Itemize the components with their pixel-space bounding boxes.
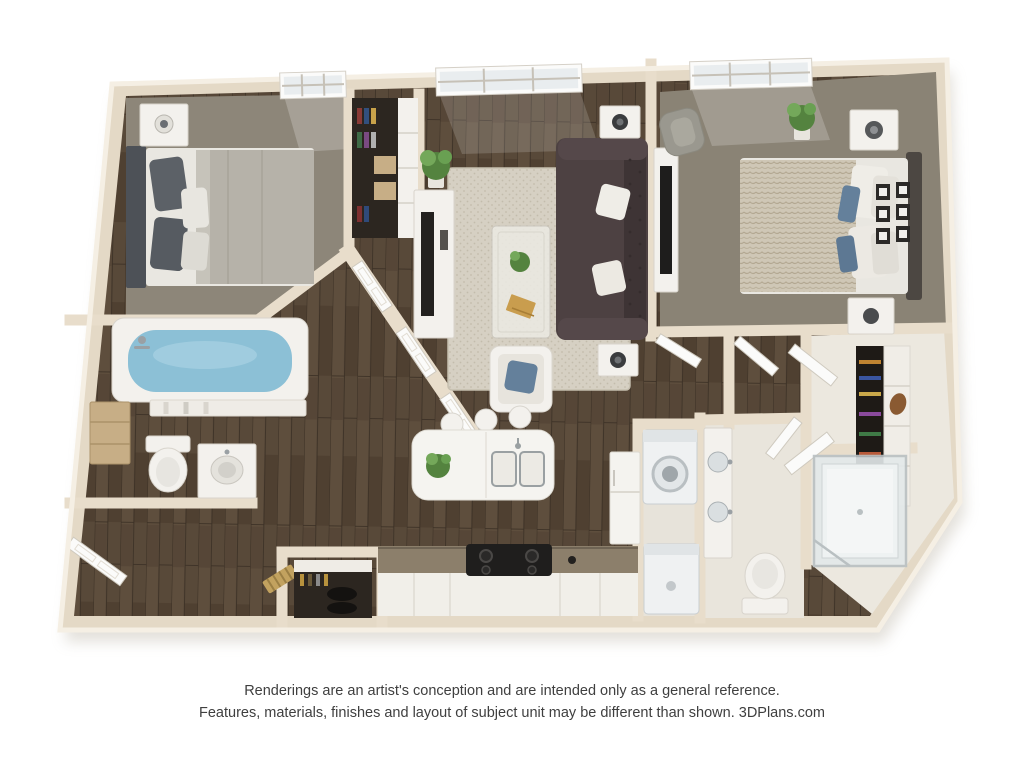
tv-console [414,190,454,338]
disclaimer-line-2: Features, materials, finishes and layout… [0,702,1024,724]
refrigerator [610,452,640,544]
floor-plan-rendering [0,0,1024,660]
disclaimer: Renderings are an artist's conception an… [0,680,1024,724]
washer [643,430,697,504]
toilet-1 [146,436,190,492]
bedroom-1-nightstand [140,104,188,146]
sofa [556,138,648,340]
toilet-2 [742,553,788,614]
bedroom-2-media-console [654,148,678,292]
cooktop [466,544,552,576]
bedroom-2-window [690,58,813,89]
towel-shelf [150,400,306,416]
armchair [490,346,552,412]
counter-item [568,556,576,564]
bedroom-2-nightstand-top [850,110,898,150]
bedroom-2-nightstand-bottom [848,298,894,334]
bedroom-1-window [280,71,347,99]
kitchen-counter [378,544,638,616]
floorplan-page: Renderings are an artist's conception an… [0,0,1024,768]
dryer [644,544,699,614]
living-window [436,64,583,96]
disclaimer-line-1: Renderings are an artist's conception an… [0,680,1024,702]
coat-closet [294,560,372,618]
towel-cabinet [90,402,130,464]
bedroom-2-bed [740,152,922,300]
side-table-bottom [598,344,638,376]
vanity-2 [704,428,733,558]
bedroom-1-bed [126,146,314,288]
side-table-top [600,106,640,138]
bedroom-1-closet [352,98,418,238]
coffee-table [492,226,550,338]
bathtub [112,318,308,402]
vanity-1 [198,444,256,498]
kitchen-island [412,430,554,500]
shower [814,456,906,566]
